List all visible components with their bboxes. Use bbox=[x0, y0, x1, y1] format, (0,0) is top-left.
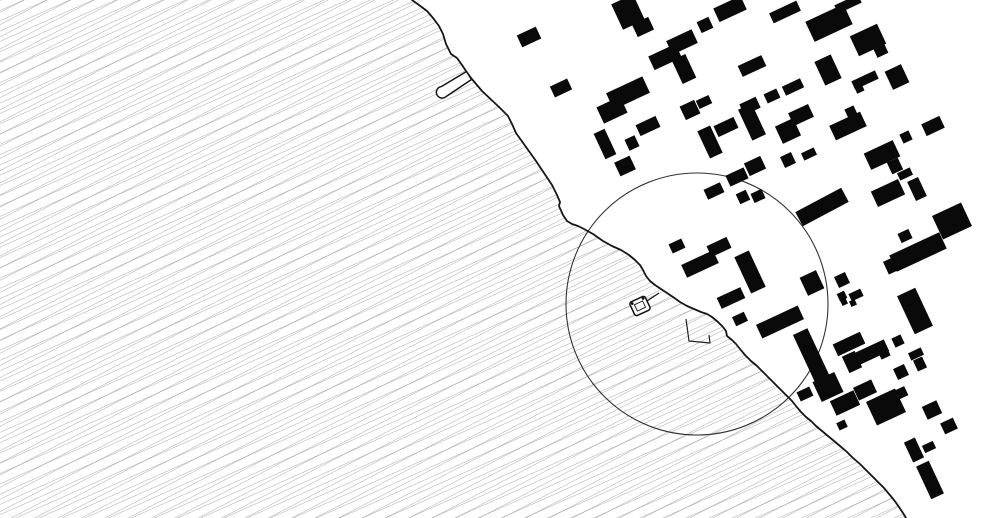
building bbox=[800, 270, 825, 296]
site-plan-drawing bbox=[0, 0, 1000, 518]
building bbox=[897, 229, 912, 243]
building bbox=[922, 400, 942, 419]
building bbox=[669, 239, 686, 254]
building bbox=[517, 27, 542, 48]
building bbox=[614, 156, 636, 177]
building bbox=[780, 152, 796, 168]
building bbox=[871, 179, 905, 207]
building bbox=[713, 0, 747, 22]
water-layer bbox=[0, 0, 906, 518]
building bbox=[732, 312, 748, 327]
building bbox=[717, 287, 746, 309]
building bbox=[736, 190, 751, 205]
building bbox=[897, 288, 933, 335]
water-hatch bbox=[0, 0, 906, 518]
building bbox=[635, 116, 660, 136]
building bbox=[697, 17, 714, 33]
building bbox=[921, 116, 945, 136]
building bbox=[805, 4, 852, 42]
building bbox=[797, 387, 814, 402]
building bbox=[795, 188, 848, 227]
building bbox=[904, 437, 924, 462]
building bbox=[916, 461, 944, 500]
building bbox=[834, 272, 850, 288]
building bbox=[893, 364, 909, 380]
building bbox=[713, 117, 738, 137]
building bbox=[907, 177, 927, 201]
building bbox=[801, 147, 817, 160]
building bbox=[885, 64, 910, 90]
building bbox=[899, 130, 912, 143]
building bbox=[550, 79, 572, 98]
building bbox=[769, 1, 801, 24]
building bbox=[848, 289, 863, 302]
building bbox=[725, 167, 748, 186]
building bbox=[738, 103, 766, 140]
building bbox=[738, 55, 767, 77]
building bbox=[734, 250, 765, 293]
building bbox=[744, 156, 766, 176]
building bbox=[922, 441, 936, 453]
building bbox=[782, 78, 804, 96]
building bbox=[814, 54, 841, 85]
building bbox=[764, 89, 781, 104]
building bbox=[624, 135, 639, 151]
building bbox=[704, 182, 725, 200]
building bbox=[836, 419, 848, 430]
building bbox=[696, 95, 712, 109]
site-plan-canvas bbox=[0, 0, 1000, 518]
building bbox=[891, 334, 904, 347]
building bbox=[594, 129, 617, 159]
building bbox=[940, 418, 958, 435]
building bbox=[706, 237, 731, 257]
